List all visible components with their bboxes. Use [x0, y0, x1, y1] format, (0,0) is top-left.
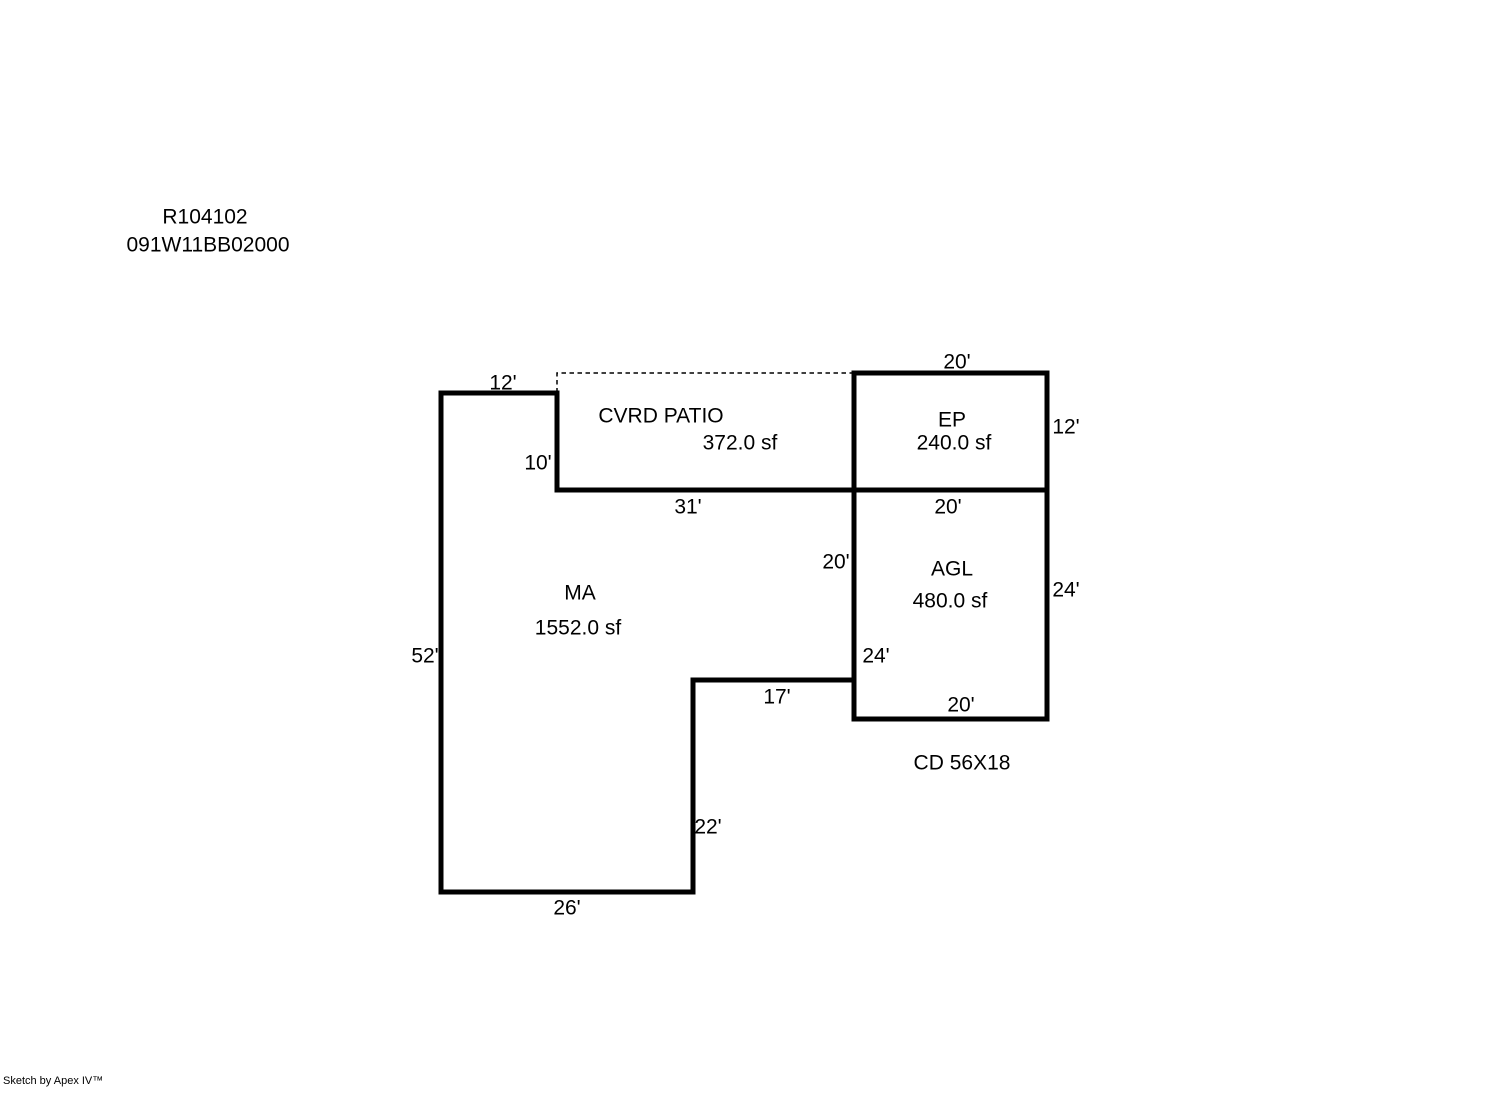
sketch-credit-label: Sketch by Apex IV™ — [3, 1075, 103, 1087]
agl-name-label: AGL — [931, 557, 973, 580]
dim-patio-bottom-label: 31' — [674, 495, 701, 518]
dim-agl-right-label: 24' — [1052, 578, 1079, 601]
sketch-page: R104102 091W11BB02000 CVRD PATIO 372.0 s… — [0, 0, 1492, 1094]
dim-ep-right-label: 12' — [1052, 415, 1079, 438]
dim-agl-top-label: 20' — [934, 495, 961, 518]
dim-ma-step-vertical-label: 22' — [694, 815, 721, 838]
dim-ma-notch-left-label: 10' — [524, 451, 551, 474]
cvrd-patio-size-label: 372.0 sf — [703, 431, 778, 454]
ep-name-label: EP — [938, 408, 966, 431]
dim-ma-step-horizontal-label: 17' — [763, 685, 790, 708]
record-id-label: R104102 — [162, 205, 247, 228]
ma-outline — [441, 393, 854, 892]
dim-ma-top-label: 12' — [489, 371, 516, 394]
ma-size-label: 1552.0 sf — [535, 616, 621, 639]
cvrd-patio-dashed-outline — [557, 373, 854, 393]
cd-name-label: CD 56X18 — [914, 751, 1011, 774]
dim-ep-top-label: 20' — [943, 350, 970, 373]
parcel-id-label: 091W11BB02000 — [126, 233, 289, 256]
dim-ma-left-label: 52' — [411, 644, 438, 667]
ep-size-label: 240.0 sf — [917, 431, 992, 454]
dim-agl-left-label: 24' — [862, 644, 889, 667]
cvrd-patio-name-label: CVRD PATIO — [598, 404, 723, 427]
floorplan-linework — [0, 0, 1492, 1094]
agl-size-label: 480.0 sf — [913, 589, 988, 612]
dim-agl-bottom-label: 20' — [947, 693, 974, 716]
dim-ma-right-label: 20' — [822, 550, 849, 573]
dim-ma-bottom-label: 26' — [553, 896, 580, 919]
ma-name-label: MA — [564, 581, 596, 604]
